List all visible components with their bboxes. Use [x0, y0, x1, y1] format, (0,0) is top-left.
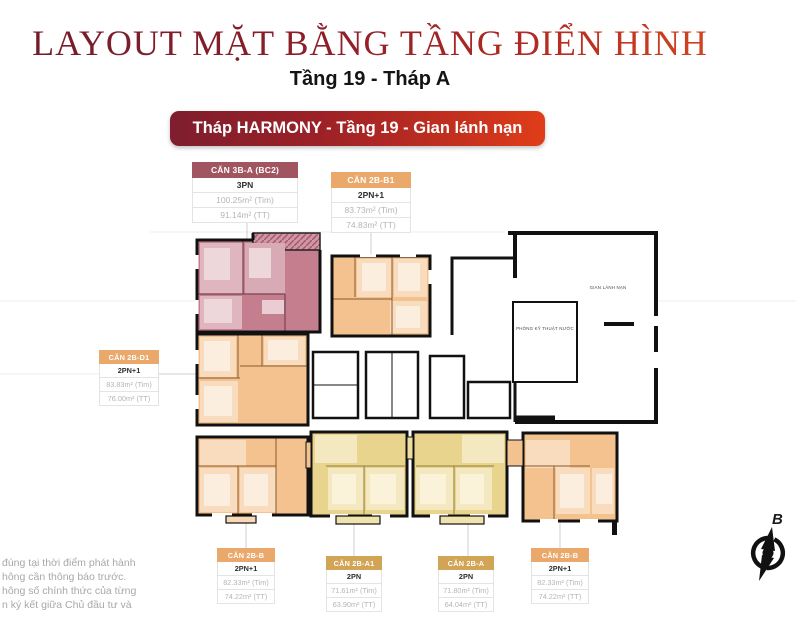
unit-name: CĂN 2B-B1: [347, 175, 394, 185]
unit-area-tim: 71.80m² (Tim): [438, 584, 494, 598]
compass-icon: B: [753, 511, 783, 581]
unit-card-2b-b-right: CĂN 2B-B 2PN+1 82.33m² (Tim) 74.22m² (TT…: [531, 548, 589, 604]
plan-unit-3b-a: [196, 233, 321, 332]
unit-type: 2PN+1: [217, 562, 275, 576]
unit-area-tim: 83.73m² (Tim): [331, 203, 411, 218]
floor-plan: PHÒNG KỸ THUẬT NƯỚC GIAN LÁNH NẠN: [0, 0, 800, 626]
unit-area-tim: 83.83m² (Tim): [99, 378, 159, 392]
unit-name: CĂN 2B-B: [228, 551, 264, 560]
refuge-area-label: GIAN LÁNH NẠN: [590, 285, 627, 290]
unit-type: 2PN+1: [531, 562, 589, 576]
unit-card-header: CĂN 2B-A1: [326, 556, 382, 570]
compass-north-label: B: [772, 511, 783, 528]
plan-unit-2b-b-left: [197, 437, 308, 523]
unit-card-2b-b1: CĂN 2B-B1 2PN+1 83.73m² (Tim) 74.83m² (T…: [331, 172, 411, 233]
unit-type: 2PN+1: [331, 188, 411, 203]
unit-type: 2PN+1: [99, 364, 159, 378]
plan-unit-2b-d1: [196, 334, 309, 425]
unit-type: 3PN: [192, 178, 298, 193]
unit-type: 2PN: [438, 570, 494, 584]
unit-card-header: CĂN 2B-A: [438, 556, 494, 570]
unit-area-tt: 74.83m² (TT): [331, 218, 411, 233]
unit-card-header: CĂN 3B-A (BC2): [192, 162, 298, 178]
unit-name: CĂN 2B-D1: [109, 353, 150, 362]
unit-card-2b-a: CĂN 2B-A 2PN 71.80m² (Tim) 64.04m² (TT): [438, 556, 494, 612]
unit-area-tt: 74.22m² (TT): [531, 590, 589, 604]
plan-unit-2b-b-right: [523, 433, 617, 535]
plan-unit-2b-a: [413, 432, 507, 524]
unit-card-header: CĂN 2B-B: [217, 548, 275, 562]
unit-area-tim: 100.25m² (Tim): [192, 193, 298, 208]
unit-card-3b-a: CĂN 3B-A (BC2) 3PN 100.25m² (Tim) 91.14m…: [192, 162, 298, 223]
unit-area-tt: 76.00m² (TT): [99, 392, 159, 406]
unit-card-header: CĂN 2B-D1: [99, 350, 159, 364]
unit-card-header: CĂN 2B-B: [531, 548, 589, 562]
unit-name: CĂN 2B-A: [448, 559, 484, 568]
unit-area-tim: 71.61m² (Tim): [326, 584, 382, 598]
plan-unit-2b-b1: [332, 254, 432, 336]
disclaimer-line: hông cần thông báo trước.: [2, 570, 136, 584]
unit-area-tt: 74.22m² (TT): [217, 590, 275, 604]
unit-area-tt: 63.90m² (TT): [326, 598, 382, 612]
disclaimer-text: đúng tại thời điểm phát hành hông cần th…: [2, 556, 136, 612]
unit-area-tt: 64.04m² (TT): [438, 598, 494, 612]
disclaimer-line: n ký kết giữa Chủ đầu tư và: [2, 598, 136, 612]
unit-name: CĂN 2B-A1: [334, 559, 375, 568]
unit-card-2b-b-left: CĂN 2B-B 2PN+1 82.33m² (Tim) 74.22m² (TT…: [217, 548, 275, 604]
unit-area-tim: 82.33m² (Tim): [217, 576, 275, 590]
disclaimer-line: đúng tại thời điểm phát hành: [2, 556, 136, 570]
unit-card-2b-a1: CĂN 2B-A1 2PN 71.61m² (Tim) 63.90m² (TT): [326, 556, 382, 612]
unit-area-tt: 91.14m² (TT): [192, 208, 298, 223]
unit-card-header: CĂN 2B-B1: [331, 172, 411, 188]
unit-type: 2PN: [326, 570, 382, 584]
plan-unit-2b-a1: [311, 432, 407, 524]
unit-name: CĂN 2B-B: [542, 551, 578, 560]
disclaimer-line: hông số chính thức của từng: [2, 584, 136, 598]
water-tech-room-label: PHÒNG KỸ THUẬT NƯỚC: [516, 326, 574, 331]
unit-name: CĂN 3B-A (BC2): [211, 165, 279, 175]
unit-card-2b-d1: CĂN 2B-D1 2PN+1 83.83m² (Tim) 76.00m² (T…: [99, 350, 159, 406]
unit-area-tim: 82.33m² (Tim): [531, 576, 589, 590]
